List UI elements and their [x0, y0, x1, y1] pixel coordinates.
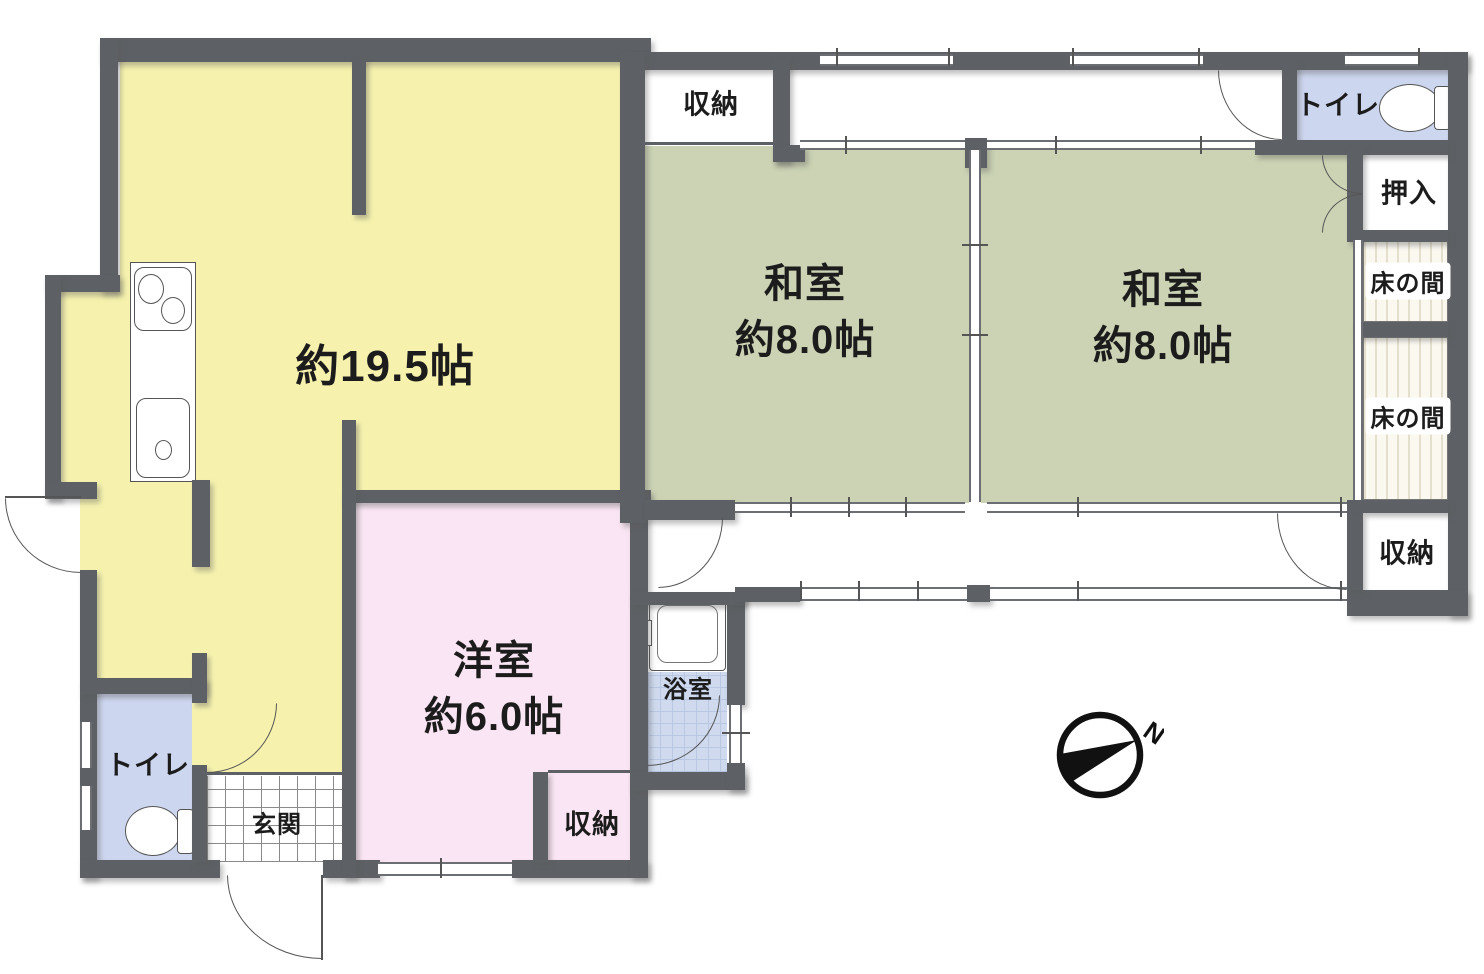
washitsu-left-size-label: 約8.0帖 [735, 307, 876, 365]
wall [1347, 513, 1363, 590]
window-tick [917, 581, 919, 601]
wall [630, 592, 745, 605]
tokonoma-edge-line [1353, 240, 1363, 500]
door-tick [845, 136, 847, 154]
sliding-door [800, 140, 965, 150]
wall [80, 678, 207, 694]
wall [630, 52, 1468, 70]
toilet-bowl-icon [125, 806, 181, 856]
ldk-size-label: 約19.5帖 [295, 330, 475, 394]
wall [1353, 322, 1448, 337]
window-tick [440, 858, 442, 878]
window-tick [1072, 48, 1074, 66]
window-tick [800, 581, 802, 601]
partition-tick [962, 244, 988, 246]
door-tick [1077, 497, 1079, 517]
window [990, 587, 1347, 601]
wall [352, 57, 366, 215]
wall-post [967, 585, 990, 602]
wall [533, 772, 548, 862]
tokonoma-lower-label: 床の間 [1366, 398, 1451, 435]
wall [100, 38, 651, 62]
wall [100, 38, 118, 292]
wall [620, 52, 645, 523]
storage-edge-line [548, 770, 632, 773]
entrance-label: 玄関 [252, 805, 302, 840]
door-tick [905, 497, 907, 517]
wall [1347, 500, 1448, 513]
oshiire-label: 押入 [1381, 172, 1437, 211]
wall [80, 860, 220, 878]
wall [1448, 52, 1468, 616]
window-tick [858, 581, 860, 601]
window [1070, 54, 1203, 66]
window-tick [836, 48, 838, 66]
wall [342, 490, 651, 503]
wall [1347, 590, 1468, 616]
sliding-door [987, 502, 1347, 513]
wall [342, 420, 356, 878]
floor-plan: 約19.5帖 和室 約8.0帖 和室 約8.0帖 洋室 約6.0帖 収納 トイレ… [0, 0, 1484, 974]
door-tick [848, 497, 850, 517]
storage-right-label: 収納 [1379, 532, 1435, 571]
wall [735, 587, 800, 602]
door-tick [790, 497, 792, 517]
washitsu-right-size-label: 約8.0帖 [1093, 313, 1234, 371]
door-tick [1055, 136, 1057, 154]
storage-top-label: 収納 [683, 83, 739, 122]
bathroom-label: 浴室 [663, 670, 713, 705]
sliding-door [987, 140, 1255, 150]
washitsu-right-name-label: 和室 [1122, 257, 1204, 315]
wall [512, 860, 648, 878]
stove-burner-icon [161, 297, 185, 324]
window-tick [1418, 48, 1420, 66]
window-tick [1198, 48, 1200, 66]
bathtub-inner-icon [657, 605, 718, 663]
wall [1282, 62, 1297, 143]
storage-right-door-arc [1277, 513, 1347, 590]
partition-tick [962, 334, 988, 336]
entrance-door-arc [227, 875, 322, 959]
wall [727, 763, 745, 790]
window [1345, 54, 1420, 66]
toilet-top-label: トイレ [1296, 84, 1380, 123]
window [378, 862, 512, 876]
wall [192, 480, 210, 567]
sink-drain-icon [155, 440, 172, 460]
tokonoma-upper-label: 床の間 [1366, 263, 1451, 300]
corridor-west-door-arc [658, 517, 723, 588]
wall [727, 592, 745, 705]
fusuma-partition [969, 150, 981, 502]
window-tick [1077, 581, 1079, 601]
western-room-size-label: 約6.0帖 [424, 684, 565, 742]
toilet-bottom-label: トイレ [106, 744, 190, 783]
western-room-name-label: 洋室 [453, 628, 535, 686]
side-door-arc [5, 498, 81, 573]
door-tick [722, 732, 750, 734]
door-tick [1200, 136, 1202, 154]
wall [192, 653, 207, 703]
washitsu-left-name-label: 和室 [764, 251, 846, 309]
wall [192, 765, 207, 862]
window-tick [948, 48, 950, 66]
entrance-step-line [207, 772, 342, 775]
toilet-top-door-arc [1218, 70, 1282, 140]
compass-icon: N [1048, 703, 1164, 807]
window [80, 722, 92, 768]
sliding-door [735, 502, 965, 513]
stove-burner-icon [138, 274, 164, 304]
storage-edge-line [645, 142, 773, 145]
kitchen-sink-icon [136, 398, 190, 478]
wall [630, 503, 648, 878]
window [820, 54, 953, 66]
room-ldk-kitchen-nook-floor [61, 290, 121, 490]
bath-sliding-door [729, 705, 742, 763]
window [80, 786, 92, 830]
toilet-bowl-icon [1379, 84, 1441, 132]
storage-bottom-label: 収納 [564, 803, 620, 842]
window [800, 587, 967, 601]
wall [45, 275, 61, 499]
